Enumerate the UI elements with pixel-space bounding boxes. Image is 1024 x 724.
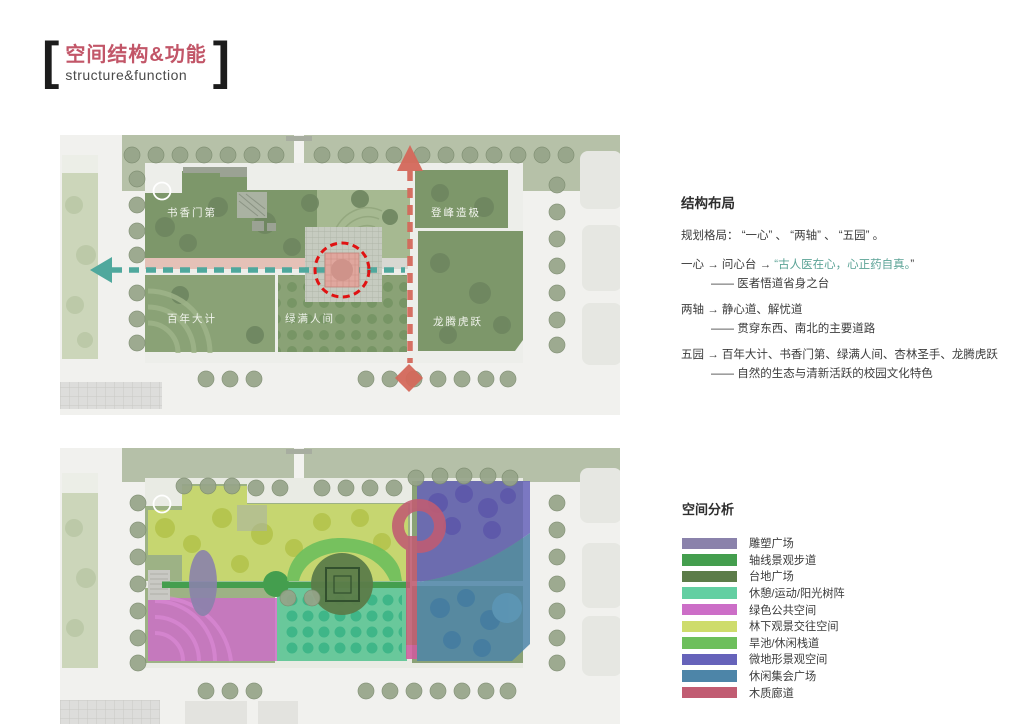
analysis-masterplan-svg (60, 448, 620, 724)
structure-item-one-heart: 一心 → 问心台 → “古人医在心，心正药自真。” —— 医者悟道省身之台 (681, 258, 1016, 291)
analysis-section: 空间分析 雕塑广场 轴线景观步道 台地广场 休憩/运动/阳光树阵 绿色公共空间 … (682, 499, 845, 701)
structure-masterplan: 书香门第 登峰造极 百年大计 绿满人间 龙腾虎跃 (60, 135, 620, 420)
tree (66, 296, 84, 314)
legend-row: 台地广场 (682, 568, 845, 585)
park-label-longtenghuyue: 龙腾虎跃 (433, 315, 483, 328)
tree (76, 568, 96, 588)
legend-row: 休憩/运动/阳光树阵 (682, 585, 845, 602)
legend-label: 休憩/运动/阳光树阵 (749, 585, 845, 601)
paved-plaza-grid (60, 700, 160, 724)
tree (76, 245, 96, 265)
north-green-belt (122, 448, 620, 482)
legend-row: 休闲集会广场 (682, 668, 845, 685)
legend-label: 轴线景观步道 (749, 552, 816, 568)
structure-item-sub: —— 自然的生态与清新活跃的校园文化特色 (681, 365, 1016, 381)
title-bracket-left: [ (42, 39, 59, 83)
zone-sculpture-plaza (189, 550, 217, 616)
paved-plaza (185, 701, 247, 724)
legend-swatch (682, 654, 737, 666)
tree (66, 619, 84, 637)
legend-label: 微地形景观空间 (749, 651, 827, 667)
legend-label: 休闲集会广场 (749, 668, 816, 684)
structure-item-sub: —— 贯穿东西、南北的主要道路 (681, 320, 1016, 336)
legend-label: 旱池/休闲栈道 (749, 635, 819, 651)
structure-section: 结构布局 规划格局： “一心” 、 “两轴” 、 “五园” 。 一心 → 问心台… (681, 192, 1016, 393)
building-footprint (237, 505, 267, 531)
legend-label: 木质廊道 (749, 685, 794, 701)
east-parcel (582, 543, 620, 608)
east-parcel (582, 616, 620, 676)
legend-swatch (682, 670, 737, 682)
legend-row: 旱池/休闲栈道 (682, 635, 845, 652)
legend-row: 绿色公共空间 (682, 601, 845, 618)
wooden-gallery-end (406, 645, 417, 659)
legend-swatch (682, 554, 737, 566)
structure-heading: 结构布局 (681, 192, 1016, 212)
structure-item-main: 两轴 → 静心道、解忧道 (681, 304, 802, 316)
title-bracket-right: ] (213, 39, 230, 83)
tree (77, 332, 93, 348)
legend-swatch (682, 687, 737, 699)
structure-item-two-axes: 两轴 → 静心道、解忧道 —— 贯穿东西、南北的主要道路 (681, 303, 1016, 336)
legend-swatch (682, 538, 737, 550)
paved-plaza (258, 701, 298, 724)
east-parcel (580, 468, 620, 523)
title-text: 空间结构&功能 structure&function (65, 38, 206, 83)
structure-item-sub: —— 医者悟道省身之台 (681, 275, 1016, 291)
analysis-heading: 空间分析 (682, 499, 845, 518)
structure-item-highlight: “古人医在心，心正药自真。 (774, 259, 910, 271)
zone-terrace-plaza (311, 553, 373, 615)
wooden-gallery-bar (406, 536, 417, 648)
structure-masterplan-svg: 书香门第 登峰造极 百年大计 绿满人间 龙腾虎跃 (60, 135, 620, 415)
park-label-shuxiangmendi: 书香门第 (167, 206, 217, 219)
west-parcel-building (62, 155, 98, 173)
legend-row: 轴线景观步道 (682, 552, 845, 569)
legend-row: 微地形景观空间 (682, 651, 845, 668)
legend-label: 林下观景交往空间 (749, 618, 839, 634)
legend-swatch (682, 637, 737, 649)
structure-intro: 规划格局： “一心” 、 “两轴” 、 “五园” 。 (681, 227, 1016, 243)
legend-swatch (682, 604, 737, 616)
terrace-plaza-circle (311, 553, 373, 615)
legend-label: 绿色公共空间 (749, 602, 816, 618)
park-label-lvmanrenjian: 绿满人间 (285, 312, 335, 325)
park-dengfengzaoji (415, 170, 508, 228)
legend-swatch (682, 621, 737, 633)
legend-row: 木质廊道 (682, 684, 845, 701)
tree (65, 196, 83, 214)
park-label-dengfengzaoji: 登峰造极 (431, 206, 481, 219)
west-parcel-building (62, 473, 98, 493)
legend-swatch (682, 587, 737, 599)
structure-item-main: 五园 → 百年大计、书香门第、绿满人间、杏林圣手、龙腾虎跃 (681, 349, 998, 361)
structure-item-five-gardens: 五园 → 百年大计、书香门第、绿满人间、杏林圣手、龙腾虎跃 —— 自然的生态与清… (681, 348, 1016, 381)
title-english: structure&function (65, 67, 206, 83)
legend-label: 雕塑广场 (749, 535, 794, 551)
title-chinese: 空间结构&功能 (65, 38, 206, 67)
east-parcel (580, 151, 620, 209)
presentation-slide: [ 空间结构&功能 structure&function ] (0, 0, 1024, 724)
north-gate (286, 449, 312, 454)
tree (65, 519, 83, 537)
paved-plaza-grid (60, 382, 162, 409)
legend-row: 林下观景交往空间 (682, 618, 845, 635)
structure-item-tail: ” (910, 259, 914, 271)
legend-swatch (682, 571, 737, 583)
legend-label: 台地广场 (749, 568, 794, 584)
structure-item-main: 一心 → 问心台 → (681, 259, 774, 271)
analysis-masterplan (60, 448, 620, 724)
north-gate (286, 136, 312, 141)
east-parcel (582, 303, 620, 365)
east-parcel (582, 225, 620, 291)
page-title: [ 空间结构&功能 structure&function ] (42, 38, 230, 83)
legend-row: 雕塑广场 (682, 535, 845, 552)
park-label-bainiandaji: 百年大计 (167, 312, 217, 325)
